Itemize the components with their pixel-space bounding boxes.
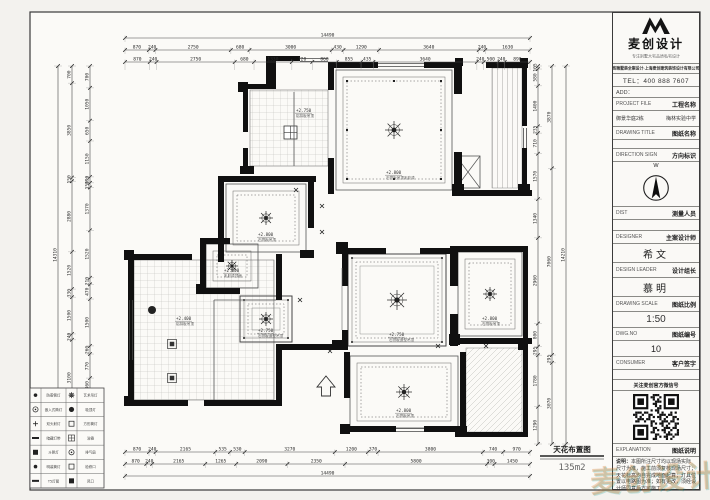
chandelier-icon [385,121,403,139]
svg-text:240: 240 [148,44,157,50]
scale-value: 1:50 [613,312,699,328]
tel-row: TEL：400 888 7607 [613,74,699,87]
svg-text:3800: 3800 [425,446,436,452]
svg-text:295: 295 [532,347,538,356]
svg-text:105: 105 [532,63,538,72]
design-leader-name: 慕明 [613,278,699,297]
svg-text:710: 710 [532,139,538,148]
consumer-signature [613,370,699,380]
svg-text:210: 210 [84,277,90,286]
svg-text:240: 240 [478,44,487,50]
svg-text:+2.800: +2.800 [224,268,240,273]
legend-table: 防雾筒灯艺术吊灯嵌入式筒灯吸顶灯双头射灯方形筒灯暗藏灯带浴霸斗胆灯排气扇明装筒灯… [30,388,104,488]
wechat-caption: 关注麦创官方微信号 [613,380,699,391]
svg-text:3870: 3870 [546,111,552,122]
project-file-label: PROJECT FILE 工程名称 [613,98,699,111]
chandelier-icon [483,287,497,301]
consumer-label: CONSUMER 客户签字 [613,357,699,370]
dist-label: DIST 测量人员 [613,207,699,220]
svg-text:浴霸: 浴霸 [87,435,94,440]
svg-text:1340: 1340 [532,213,538,224]
compass-icon: W [613,162,699,207]
svg-text:14490: 14490 [321,470,335,476]
svg-text:2880: 2880 [66,211,72,222]
svg-text:+2.800: +2.800 [386,170,402,175]
svg-text:2750: 2750 [190,56,201,62]
title-block: 麦创设计 专注别墅大宅品质私宅设计 高端墅装全案设计·上海麦创建筑装饰设计有限公… [612,12,700,490]
svg-text:7060: 7060 [546,256,552,267]
svg-text:870: 870 [133,56,142,62]
svg-text:135m2: 135m2 [558,463,585,473]
svg-text:3000: 3000 [285,44,296,50]
svg-text:3070: 3070 [546,398,552,409]
svg-text:乳胶漆顶面: 乳胶漆顶面 [224,273,242,278]
svg-text:240: 240 [476,56,485,62]
svg-text:1290: 1290 [356,44,367,50]
svg-text:580: 580 [532,73,538,82]
brand-name: 麦创设计 [628,35,684,52]
svg-text:方形筒灯: 方形筒灯 [84,421,98,426]
svg-text:240: 240 [145,458,154,464]
svg-text:5800: 5800 [411,458,422,464]
svg-text:嵌入式筒灯: 嵌入式筒灯 [45,407,63,412]
svg-text:240: 240 [497,56,506,62]
svg-text:1570: 1570 [532,171,538,182]
chandelier-icon [69,392,75,398]
svg-text:3270: 3270 [284,446,295,452]
svg-text:870: 870 [133,44,142,50]
svg-text:770: 770 [84,362,90,371]
brand-banner: 高端墅装全案设计·上海麦创建筑装饰设计有限公司 [613,64,699,74]
dwg-no-label: DWG.NO 图纸编号 [613,328,699,341]
dwg-no-value: 10 [613,341,699,357]
chandelier-icon [387,290,407,310]
svg-text:680: 680 [240,56,249,62]
svg-text:天花布置图: 天花布置图 [553,444,591,454]
brand-slogan: 专注别墅大宅品质私宅设计 [632,54,680,60]
svg-text:1500: 1500 [66,310,72,321]
svg-text:1520: 1520 [84,248,90,259]
svg-text:260: 260 [84,346,90,355]
svg-text:排气扇: 排气扇 [85,450,96,455]
drawing-sheet: +2.800石膏板吊顶乳胶漆+2.800石膏板吊顶+2.800乳胶漆顶面+2.7… [0,0,710,500]
svg-text:235: 235 [532,125,538,134]
chandelier-icon [259,211,273,225]
svg-text:890: 890 [513,56,522,62]
svg-text:435: 435 [363,56,372,62]
svg-text:+2.750: +2.750 [296,108,312,113]
svg-text:535: 535 [219,446,228,452]
svg-text:1450: 1450 [507,458,518,464]
svg-text:1630: 1630 [502,44,513,50]
svg-text:530: 530 [233,446,242,452]
drawing-title-value [613,140,699,149]
qr-code [613,391,699,444]
dist-value [613,220,699,231]
svg-text:2090: 2090 [256,458,267,464]
svg-text:检修口: 检修口 [85,464,96,469]
floor-plan-svg: +2.800石膏板吊顶乳胶漆+2.800石膏板吊顶+2.800乳胶漆顶面+2.7… [0,0,710,500]
svg-text:风口: 风口 [87,479,94,483]
svg-text:+2.750: +2.750 [258,328,274,333]
svg-text:明装筒灯: 明装筒灯 [47,464,61,469]
svg-text:1330: 1330 [267,56,278,62]
svg-text:240: 240 [149,56,158,62]
svg-text:+2.800: +2.800 [258,232,274,237]
svg-text:1290: 1290 [532,420,538,431]
svg-text:1520: 1520 [66,265,72,276]
svg-text:石膏板吊顶乳胶漆: 石膏板吊顶乳胶漆 [386,175,415,180]
svg-text:铝扣板吊顶: 铝扣板吊顶 [176,321,194,326]
direction-sign-label: DIRECTION SIGN 方向标识 [613,149,699,162]
svg-text:430: 430 [333,44,342,50]
svg-text:1265: 1265 [215,458,226,464]
svg-text:防雾筒灯: 防雾筒灯 [47,393,61,398]
svg-text:3100: 3100 [66,372,72,383]
svg-text:双头射灯: 双头射灯 [47,421,61,426]
add-row: ADD： [613,87,699,98]
svg-text:1050: 1050 [84,99,90,110]
svg-text:370: 370 [369,446,378,452]
svg-text:1150: 1150 [84,153,90,164]
svg-text:700: 700 [66,70,72,79]
svg-text:1200: 1200 [346,446,357,452]
svg-text:+2.800: +2.800 [396,408,412,413]
explanation-notes: 说明：本图所注尺寸均以现场实际尺寸为准，施工前须复核现场尺寸；天花标高均自完成地… [613,457,699,489]
svg-text:1780: 1780 [532,375,538,386]
svg-text:700: 700 [84,73,90,82]
svg-text:740: 740 [489,446,498,452]
svg-text:暗藏灯带: 暗藏灯带 [47,435,61,440]
design-leader-label: DESIGN LEADER 设计组长 [613,263,699,278]
svg-text:240: 240 [148,446,157,452]
svg-text:295: 295 [546,355,552,364]
svg-text:800: 800 [532,331,538,340]
svg-text:870: 870 [133,446,142,452]
project-file-value: 御景华庭2栋 梅林实验中学 [613,111,699,127]
logo-m-icon [639,16,673,34]
svg-text:艺术吊灯: 艺术吊灯 [84,393,98,398]
svg-text:2350: 2350 [311,458,322,464]
svg-text:330: 330 [66,289,72,298]
svg-text:14490: 14490 [321,32,335,38]
svg-text:680: 680 [236,44,245,50]
svg-text:855: 855 [345,56,354,62]
svg-text:470: 470 [84,287,90,296]
svg-text:300: 300 [487,458,496,464]
svg-text:T5灯管: T5灯管 [48,478,60,483]
svg-text:1500: 1500 [84,317,90,328]
svg-text:+2.800: +2.800 [482,316,498,321]
svg-text:970: 970 [512,446,521,452]
svg-text:石膏板吊顶: 石膏板吊顶 [396,413,414,418]
svg-text:2165: 2165 [173,458,184,464]
svg-text:3850: 3850 [66,125,72,136]
chandelier-icon [396,384,412,400]
company-logo: 麦创设计 专注别墅大宅品质私宅设计 [613,13,699,64]
explanation-label: EXPLANATION 图纸说明 [613,444,699,457]
svg-text:240: 240 [66,333,72,342]
svg-text:+2.400: +2.400 [176,316,192,321]
designer-name: 希文 [613,244,699,263]
svg-text:石膏板造型吊顶: 石膏板造型吊顶 [389,337,415,342]
designer-label: DESIGNER 主案设计师 [613,231,699,244]
svg-text:870: 870 [132,458,141,464]
svg-text:860: 860 [320,56,329,62]
svg-text:1370: 1370 [84,203,90,214]
svg-text:吸顶灯: 吸顶灯 [85,407,96,412]
svg-text:2165: 2165 [180,446,191,452]
svg-text:+2.750: +2.750 [389,332,405,337]
svg-text:1400: 1400 [532,100,538,111]
svg-text:石膏板吊顶: 石膏板吊顶 [258,237,276,242]
svg-text:石膏板造型吊顶: 石膏板造型吊顶 [258,333,284,338]
svg-text:150: 150 [66,175,72,184]
chandelier-icon [259,312,273,326]
svg-text:500: 500 [487,56,496,62]
svg-text:铝扣板吊顶: 铝扣板吊顶 [296,113,314,118]
scale-label: DRAWING SCALE 图纸比例 [613,297,699,312]
svg-text:650: 650 [84,126,90,135]
svg-text:2960: 2960 [532,275,538,286]
svg-text:720: 720 [298,56,307,62]
svg-text:14310: 14310 [52,248,58,262]
svg-text:3640: 3640 [420,56,431,62]
svg-text:14210: 14210 [560,248,566,262]
svg-text:石膏板吊顶: 石膏板吊顶 [482,321,500,326]
svg-text:斗胆灯: 斗胆灯 [48,450,59,455]
svg-text:150: 150 [84,181,90,190]
drawing-title-label: DRAWING TITLE 图纸名称 [613,127,699,140]
svg-text:2750: 2750 [188,44,199,50]
svg-text:3640: 3640 [423,44,434,50]
